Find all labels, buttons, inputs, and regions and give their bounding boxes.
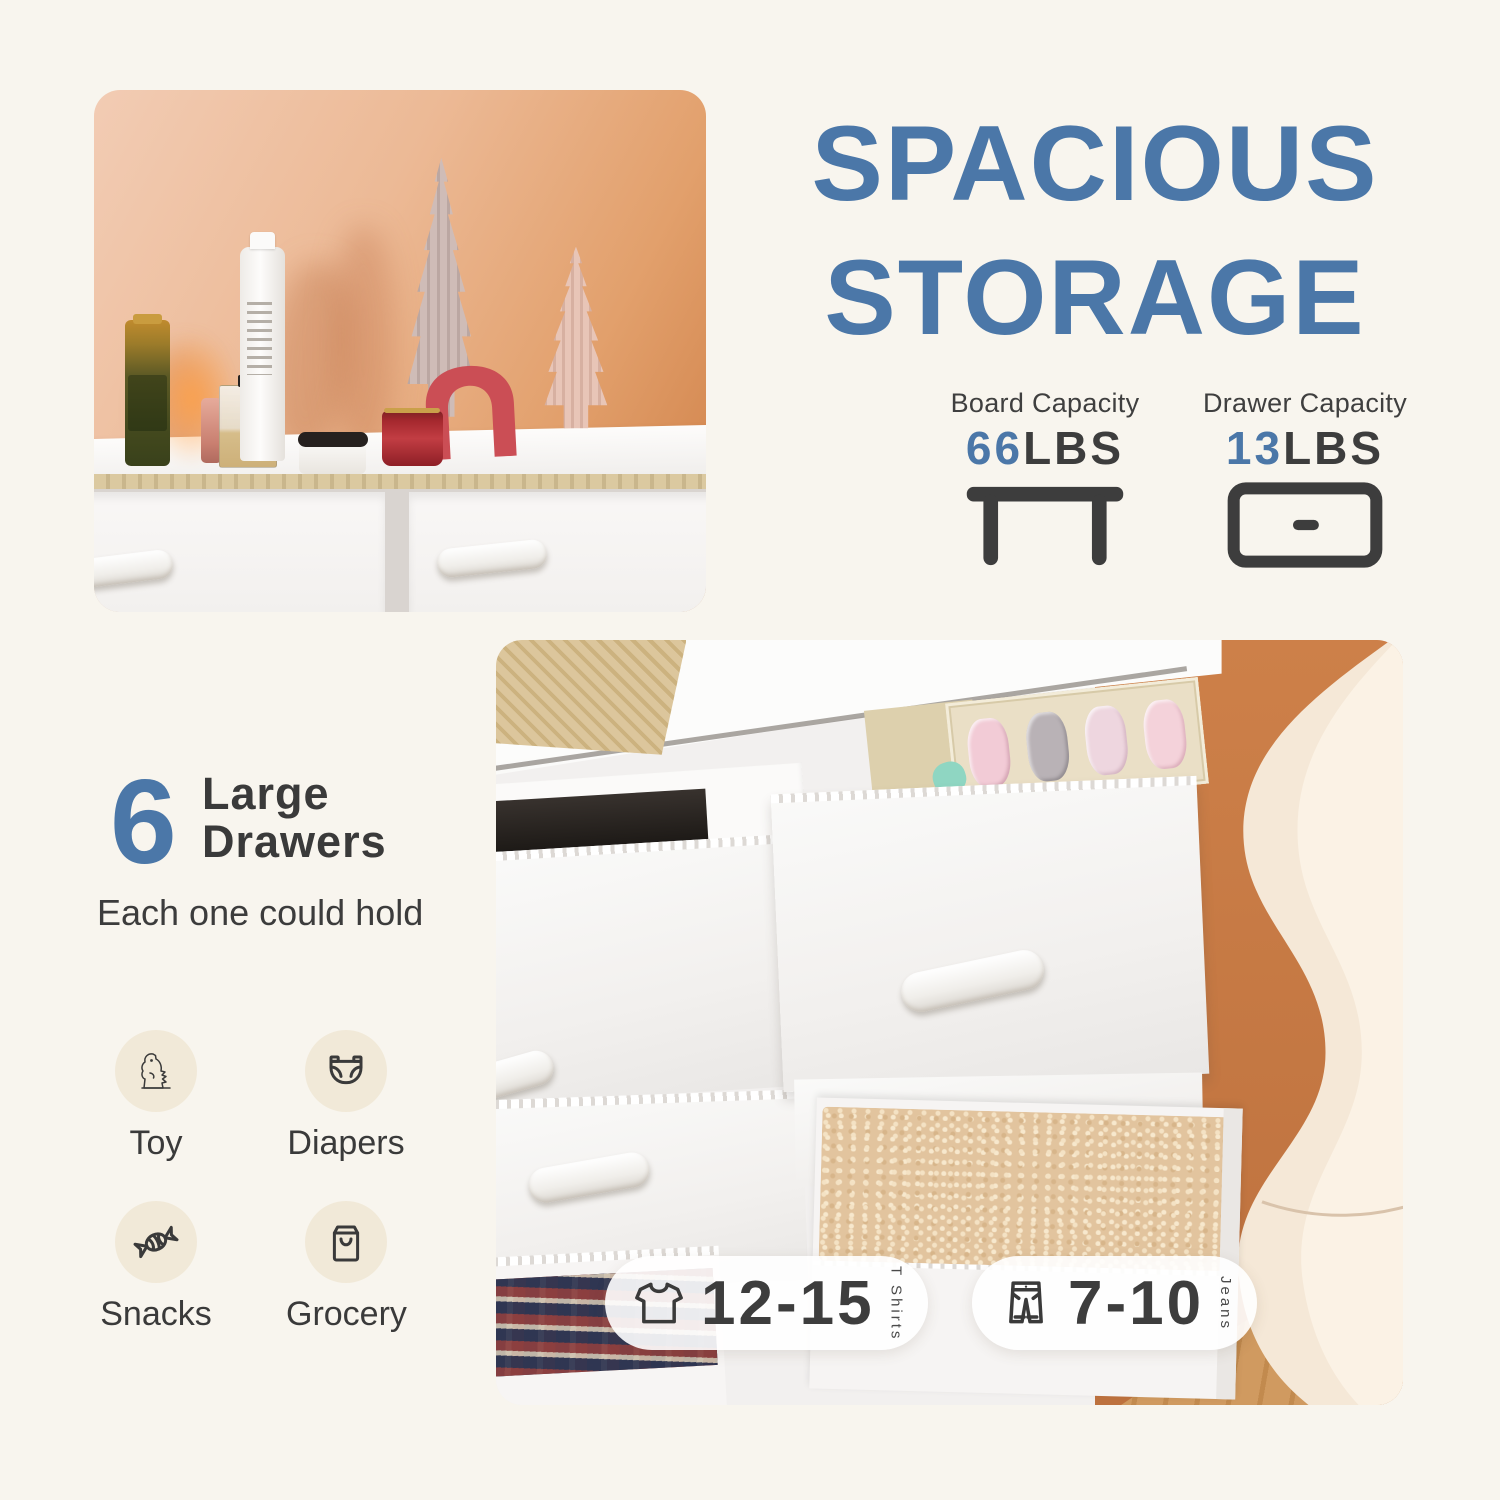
- folded-clothes: [1082, 704, 1130, 776]
- folded-clothes: [1023, 710, 1071, 782]
- table-icon: [959, 481, 1131, 569]
- diaper-icon: [322, 1047, 370, 1095]
- cream-jar: [299, 440, 366, 474]
- jeans-icon: [998, 1275, 1054, 1331]
- woven-basket: [496, 640, 686, 755]
- feature-item-diapers: Diapers: [286, 1030, 406, 1163]
- feature-item-label: Diapers: [286, 1124, 406, 1163]
- badge-unit: T Shirts: [889, 1264, 904, 1341]
- grocery-bag-icon: [322, 1218, 370, 1266]
- headline-line2: STORAGE: [770, 230, 1420, 364]
- capacity-badge-tshirts: 12-15 T Shirts: [605, 1256, 928, 1350]
- capacity-stats: Board Capacity 66LBS Drawer Capacity 13L…: [935, 388, 1415, 574]
- spray-bottle: [240, 247, 285, 461]
- badge-value: 12-15: [701, 1268, 875, 1339]
- feature-item-label: Grocery: [286, 1295, 406, 1334]
- photo-dresser-top: [94, 90, 706, 612]
- drawer-capacity-label: Drawer Capacity: [1195, 388, 1415, 419]
- candy-icon: [132, 1218, 180, 1266]
- feature-item-label: Toy: [96, 1124, 216, 1163]
- feature-item-snacks: Snacks: [96, 1201, 216, 1334]
- dinosaur-icon: [132, 1047, 180, 1095]
- feature-subheading: Each one could hold: [97, 892, 423, 934]
- photo-dresser-open: 12-15 T Shirts 7-10 Jeans: [496, 640, 1403, 1405]
- feature-item-grocery: Grocery: [286, 1201, 406, 1334]
- headline: SPACIOUS STORAGE: [770, 96, 1420, 364]
- red-candle-jar: [382, 411, 443, 466]
- feature-item-toy: Toy: [96, 1030, 216, 1163]
- board-capacity-stat: Board Capacity 66LBS: [935, 388, 1155, 574]
- board-capacity-label: Board Capacity: [935, 388, 1155, 419]
- headline-line1: SPACIOUS: [770, 96, 1420, 230]
- drawer-count: 6: [110, 762, 177, 882]
- drawer-capacity-stat: Drawer Capacity 13LBS: [1195, 388, 1415, 574]
- badge-value: 7-10: [1068, 1268, 1204, 1339]
- product-infographic: SPACIOUS STORAGE Board Capacity 66LBS Dr…: [0, 0, 1500, 1500]
- drawer-icon: [1219, 481, 1391, 569]
- amber-bottle: [125, 320, 171, 466]
- fuzzy-blanket: [819, 1106, 1236, 1271]
- drawer-front-main: [771, 776, 1210, 1093]
- folded-clothes: [965, 716, 1013, 788]
- folded-clothes: [1141, 698, 1189, 770]
- dresser-front: [94, 474, 706, 612]
- capacity-badge-jeans: 7-10 Jeans: [972, 1256, 1257, 1350]
- drawer-capacity-value: 13LBS: [1195, 425, 1415, 471]
- feature-heading: Large Drawers: [202, 770, 387, 866]
- badge-unit: Jeans: [1218, 1274, 1233, 1331]
- open-drawer-blanket: [810, 1097, 1244, 1399]
- board-capacity-value: 66LBS: [935, 425, 1155, 471]
- feature-item-label: Snacks: [96, 1295, 216, 1334]
- dresser-frame-strip: [94, 474, 706, 490]
- tshirt-icon: [631, 1275, 687, 1331]
